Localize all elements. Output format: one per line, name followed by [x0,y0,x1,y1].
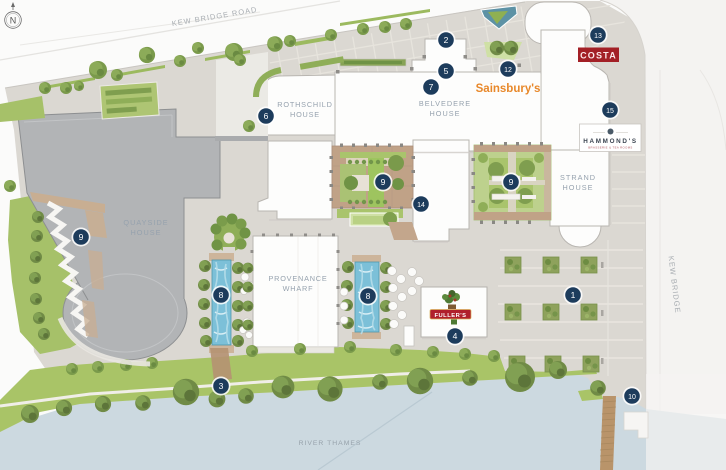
svg-text:5: 5 [444,66,449,76]
svg-text:FULLER'S: FULLER'S [434,313,466,319]
svg-text:STRAND: STRAND [560,173,596,182]
svg-text:12: 12 [504,67,512,74]
svg-text:WHARF: WHARF [283,284,314,293]
svg-text:COSTA: COSTA [580,51,617,61]
svg-text:BRASSERIE & TEA ROOMS: BRASSERIE & TEA ROOMS [588,146,632,150]
svg-text:QUAYSIDE: QUAYSIDE [123,218,168,227]
svg-text:HOUSE: HOUSE [131,228,162,237]
svg-text:ROTHSCHILD: ROTHSCHILD [277,100,332,109]
svg-text:BELVEDERE: BELVEDERE [419,99,471,108]
svg-text:9: 9 [381,177,386,187]
svg-text:2: 2 [444,35,449,45]
svg-text:8: 8 [366,291,371,301]
svg-text:HOUSE: HOUSE [290,110,320,119]
svg-text:N: N [10,16,17,26]
svg-text:PROVENANCE: PROVENANCE [268,274,327,283]
svg-text:15: 15 [606,108,614,115]
svg-text:1: 1 [571,290,576,300]
svg-text:14: 14 [417,202,425,209]
svg-text:RIVER THAMES: RIVER THAMES [299,440,362,447]
svg-text:HAMMOND'S: HAMMOND'S [583,138,638,145]
svg-text:9: 9 [509,177,514,187]
svg-text:3: 3 [219,381,224,391]
svg-text:8: 8 [219,290,224,300]
svg-text:HOUSE: HOUSE [430,109,461,118]
svg-text:Sainsbury's: Sainsbury's [476,83,541,95]
svg-text:HOUSE: HOUSE [563,183,594,192]
svg-text:4: 4 [453,331,458,341]
svg-text:7: 7 [429,82,434,92]
svg-text:10: 10 [628,394,636,401]
svg-text:6: 6 [264,111,269,121]
svg-text:9: 9 [79,232,84,242]
svg-text:13: 13 [594,33,602,40]
